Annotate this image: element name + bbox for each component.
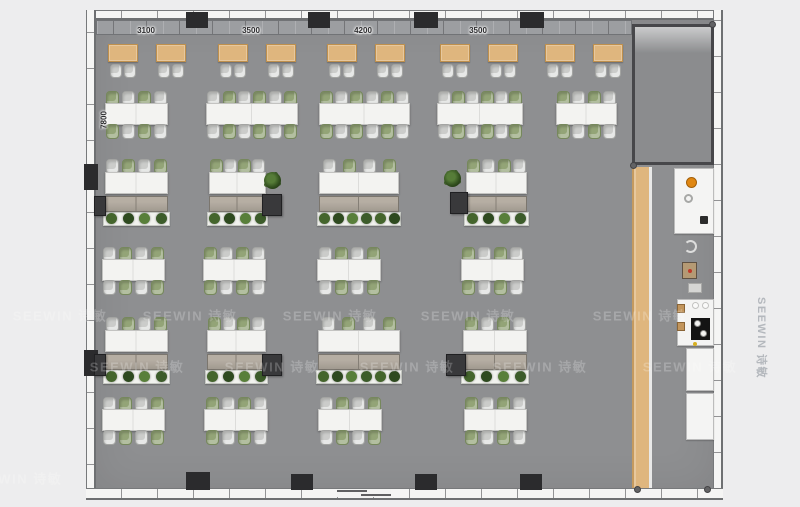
watermark-text: SEEWIN 诗敏	[143, 306, 237, 325]
dimension-label: 3100	[137, 26, 155, 35]
dimension-label: 7800	[100, 111, 109, 129]
watermark-layer: SEEWIN 诗敏SEEWIN 诗敏SEEWIN 诗敏SEEWIN 诗敏SEEW…	[0, 0, 800, 507]
watermark-text: SEEWIN 诗敏	[90, 357, 184, 376]
watermark-text: SEEWIN 诗敏	[421, 306, 515, 325]
watermark-text: SEEWIN 诗敏	[283, 306, 377, 325]
dimension-label: 4200	[354, 26, 372, 35]
watermark-text: SEEWIN 诗敏	[493, 357, 587, 376]
watermark-text: SEEWIN 诗敏	[13, 306, 107, 325]
watermark-text: SEEWIN 诗敏	[643, 357, 737, 376]
watermark-text: SEEWIN 诗敏	[593, 306, 687, 325]
dimension-label: 3500	[242, 26, 260, 35]
watermark-text: SEEWIN 诗敏	[754, 297, 770, 379]
dimension-label: 3500	[469, 26, 487, 35]
watermark-text: SEEWIN 诗敏	[0, 469, 62, 488]
floor-plan-page: 3100 3500 4200 3500 7800 SEEWIN 诗敏SEEWIN…	[0, 0, 800, 507]
watermark-text: SEEWIN 诗敏	[225, 357, 319, 376]
watermark-text: SEEWIN 诗敏	[360, 357, 454, 376]
